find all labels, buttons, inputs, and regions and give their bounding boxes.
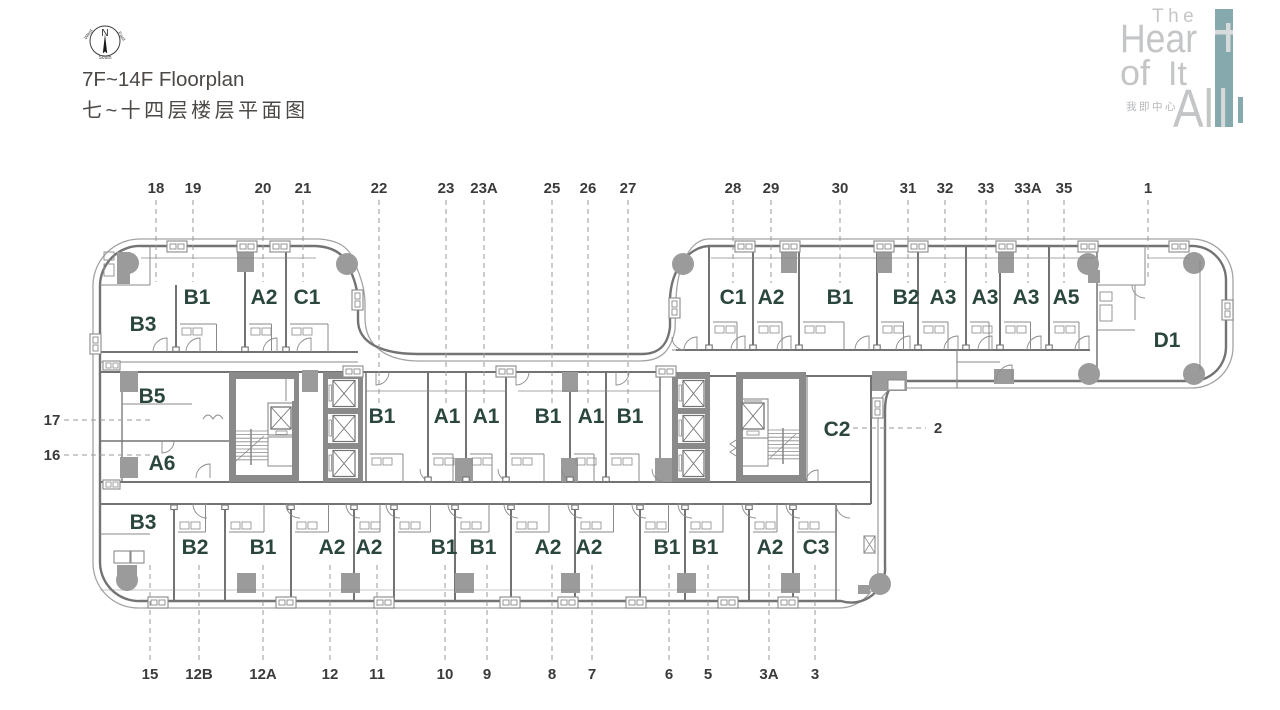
svg-text:11: 11: [369, 666, 385, 683]
svg-text:7F~14F Floorplan: 7F~14F Floorplan: [82, 68, 244, 91]
svg-text:A2: A2: [356, 536, 383, 559]
svg-text:A1: A1: [578, 405, 605, 428]
svg-text:C2: C2: [824, 418, 851, 441]
svg-text:B1: B1: [470, 536, 497, 559]
svg-text:South: South: [98, 55, 111, 61]
svg-text:5: 5: [704, 666, 712, 683]
svg-text:A2: A2: [757, 536, 784, 559]
svg-text:B1: B1: [250, 536, 277, 559]
svg-text:我即中心: 我即中心: [1126, 100, 1178, 113]
svg-text:31: 31: [900, 180, 917, 197]
svg-text:B3: B3: [130, 511, 157, 534]
svg-text:23: 23: [438, 180, 455, 197]
svg-text:29: 29: [763, 180, 780, 197]
svg-text:B2: B2: [182, 536, 209, 559]
svg-text:A3: A3: [972, 286, 999, 309]
svg-text:18: 18: [148, 180, 165, 197]
svg-text:A5: A5: [1053, 286, 1080, 309]
svg-text:15: 15: [142, 666, 159, 683]
svg-text:B1: B1: [535, 405, 562, 428]
svg-text:30: 30: [832, 180, 849, 197]
svg-text:3: 3: [811, 666, 819, 683]
svg-text:A3: A3: [930, 286, 957, 309]
svg-text:A3: A3: [1013, 286, 1040, 309]
svg-text:2: 2: [934, 420, 942, 437]
svg-text:A1: A1: [473, 405, 500, 428]
svg-text:35: 35: [1056, 180, 1073, 197]
svg-text:12A: 12A: [249, 666, 277, 683]
svg-text:25: 25: [544, 180, 561, 197]
svg-text:19: 19: [185, 180, 202, 197]
svg-text:A2: A2: [319, 536, 346, 559]
svg-text:12: 12: [322, 666, 339, 683]
svg-text:A2: A2: [251, 286, 278, 309]
svg-text:A1: A1: [434, 405, 461, 428]
svg-text:10: 10: [437, 666, 454, 683]
svg-text:B1: B1: [617, 405, 644, 428]
svg-text:of: of: [1120, 52, 1151, 93]
svg-text:28: 28: [725, 180, 742, 197]
svg-text:B1: B1: [431, 536, 458, 559]
svg-text:B1: B1: [827, 286, 854, 309]
svg-text:B1: B1: [184, 286, 211, 309]
svg-text:33: 33: [978, 180, 995, 197]
svg-text:22: 22: [371, 180, 388, 197]
svg-text:21: 21: [295, 180, 312, 197]
svg-text:12B: 12B: [185, 666, 213, 683]
svg-text:Al: Al: [1173, 79, 1214, 139]
svg-text:B1: B1: [369, 405, 396, 428]
svg-text:C3: C3: [803, 536, 830, 559]
svg-text:B1: B1: [692, 536, 719, 559]
svg-text:6: 6: [665, 666, 673, 683]
svg-text:A6: A6: [149, 452, 176, 475]
svg-text:C1: C1: [720, 286, 747, 309]
svg-text:3A: 3A: [759, 666, 778, 683]
svg-text:32: 32: [937, 180, 954, 197]
svg-text:20: 20: [255, 180, 272, 197]
svg-text:B5: B5: [139, 385, 166, 408]
svg-text:A2: A2: [535, 536, 562, 559]
svg-text:8: 8: [548, 666, 556, 683]
svg-text:17: 17: [44, 412, 61, 429]
svg-text:B3: B3: [130, 313, 157, 336]
svg-text:B2: B2: [893, 286, 920, 309]
svg-text:7: 7: [588, 666, 596, 683]
svg-text:27: 27: [620, 180, 637, 197]
svg-text:B1: B1: [654, 536, 681, 559]
svg-text:23A: 23A: [470, 180, 498, 197]
svg-text:C1: C1: [294, 286, 321, 309]
svg-text:1: 1: [1144, 180, 1152, 197]
svg-text:D1: D1: [1154, 329, 1181, 352]
svg-text:26: 26: [580, 180, 597, 197]
svg-text:l: l: [1218, 79, 1228, 139]
svg-text:A2: A2: [758, 286, 785, 309]
svg-text:A2: A2: [576, 536, 603, 559]
svg-text:16: 16: [44, 447, 61, 464]
svg-text:七~十四层楼层平面图: 七~十四层楼层平面图: [82, 99, 309, 122]
svg-text:33A: 33A: [1014, 180, 1042, 197]
svg-text:9: 9: [483, 666, 491, 683]
